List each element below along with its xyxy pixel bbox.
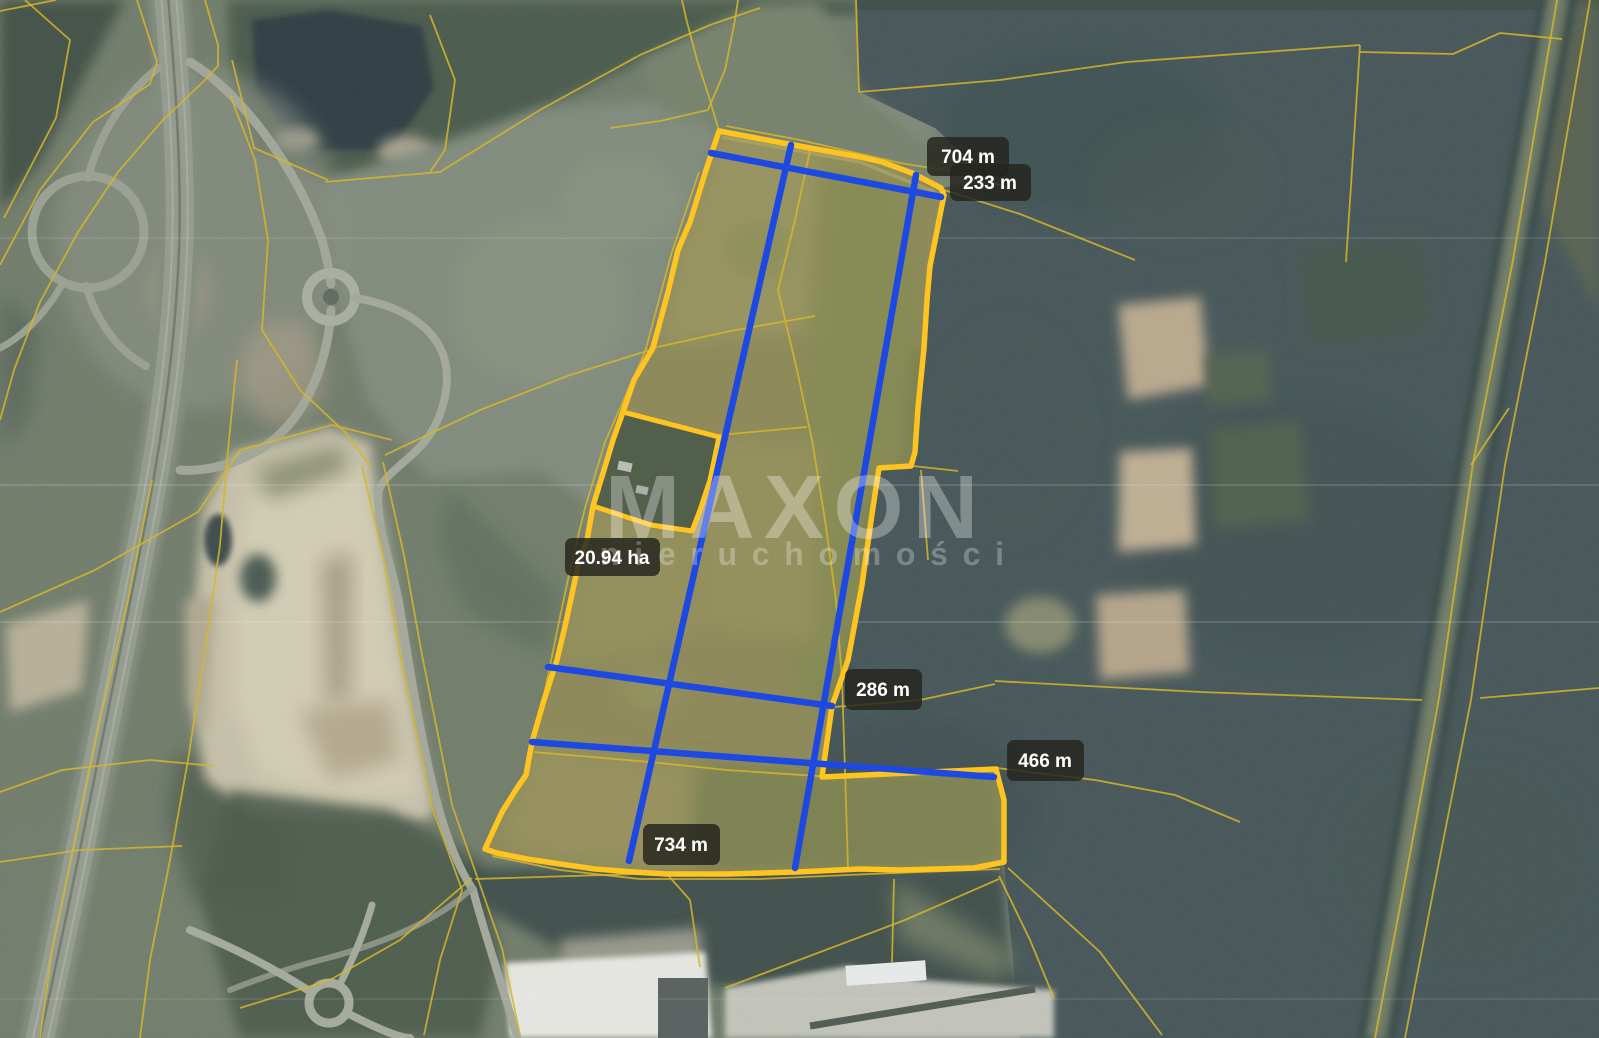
svg-text:nieruchomości: nieruchomości xyxy=(600,536,1019,572)
svg-text:734 m: 734 m xyxy=(654,835,708,856)
svg-text:466 m: 466 m xyxy=(1018,751,1072,772)
svg-text:704 m: 704 m xyxy=(941,147,995,168)
svg-text:286 m: 286 m xyxy=(856,680,910,701)
svg-text:233 m: 233 m xyxy=(963,173,1017,194)
